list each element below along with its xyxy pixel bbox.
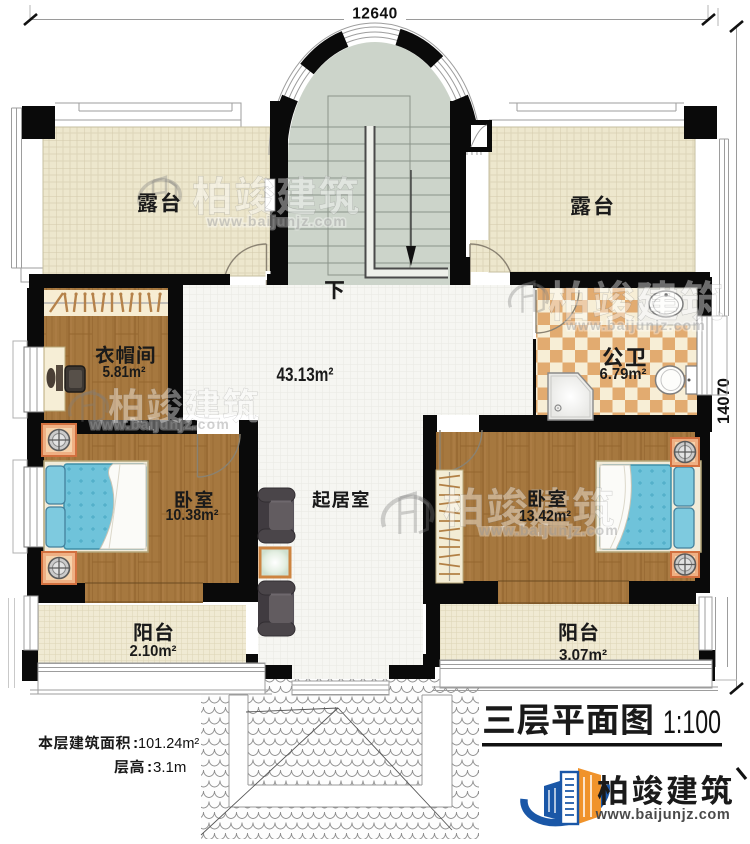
svg-text:www.baijunjz.com: www.baijunjz.com: [206, 213, 347, 229]
svg-text:43.13m²: 43.13m²: [277, 365, 334, 386]
svg-text:10.38m²: 10.38m²: [166, 507, 219, 524]
svg-text:3.07m²: 3.07m²: [559, 647, 607, 664]
svg-text:www.baijunjz.com: www.baijunjz.com: [89, 416, 230, 432]
svg-text:1:100: 1:100: [663, 704, 721, 740]
svg-text:12640: 12640: [352, 6, 398, 23]
svg-text:www.baijunjz.com: www.baijunjz.com: [565, 317, 706, 333]
svg-text:14070: 14070: [715, 378, 733, 424]
svg-text:13.42m²: 13.42m²: [519, 508, 571, 525]
svg-text:6.79m²: 6.79m²: [600, 366, 647, 383]
svg-text::: :: [147, 759, 152, 776]
svg-text:3.1m: 3.1m: [153, 759, 186, 776]
svg-text:101.24m²: 101.24m²: [138, 736, 199, 752]
svg-text:5.81m²: 5.81m²: [103, 364, 146, 381]
svg-text:www.baijunjz.com: www.baijunjz.com: [595, 807, 731, 823]
svg-text:2.10m²: 2.10m²: [130, 643, 177, 660]
